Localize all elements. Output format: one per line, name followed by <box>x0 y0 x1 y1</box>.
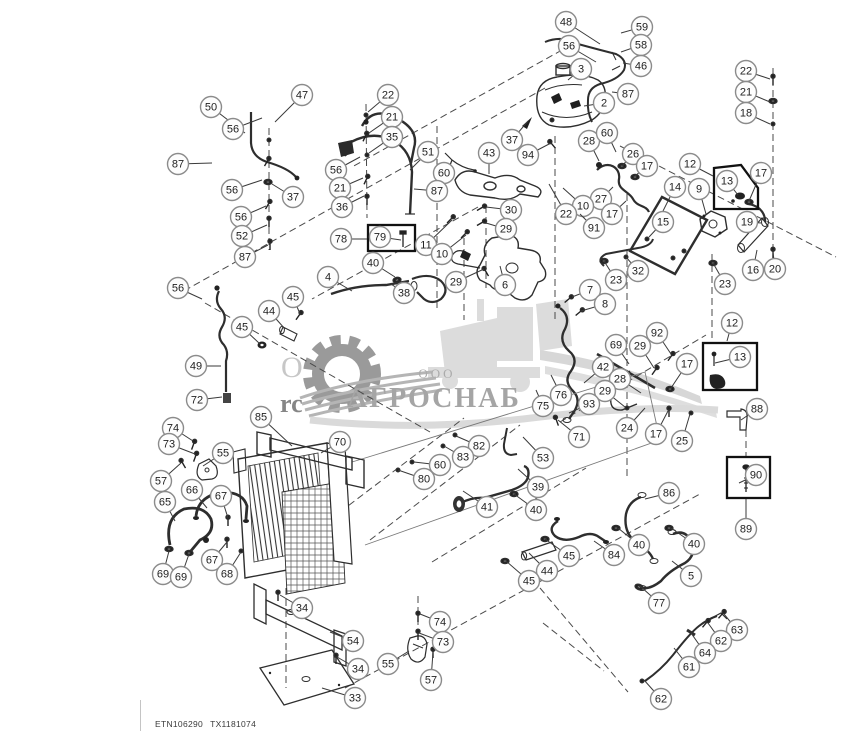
svg-text:73: 73 <box>163 439 175 451</box>
parts-diagram-page: ООО АГРОСНАБ О rc <box>0 0 841 731</box>
svg-text:74: 74 <box>434 617 446 629</box>
svg-text:56: 56 <box>226 185 238 197</box>
svg-text:69: 69 <box>175 572 187 584</box>
watermark-fragment-letter: О <box>281 351 303 384</box>
svg-text:69: 69 <box>610 340 622 352</box>
svg-text:7: 7 <box>587 285 593 297</box>
svg-text:14: 14 <box>669 182 681 194</box>
svg-text:34: 34 <box>296 603 308 615</box>
svg-text:21: 21 <box>334 183 346 195</box>
svg-text:29: 29 <box>634 341 646 353</box>
svg-text:48: 48 <box>560 17 572 29</box>
svg-text:43: 43 <box>483 148 495 160</box>
doc-code: ETN106290 <box>155 719 203 729</box>
svg-text:73: 73 <box>437 637 449 649</box>
svg-text:17: 17 <box>641 161 653 173</box>
svg-text:90: 90 <box>750 470 762 482</box>
svg-text:29: 29 <box>500 224 512 236</box>
svg-text:22: 22 <box>560 209 572 221</box>
svg-text:13: 13 <box>734 352 746 364</box>
svg-text:56: 56 <box>235 212 247 224</box>
svg-text:28: 28 <box>583 136 595 148</box>
svg-text:27: 27 <box>595 194 607 206</box>
svg-text:55: 55 <box>217 448 229 460</box>
svg-text:51: 51 <box>422 147 434 159</box>
svg-text:34: 34 <box>352 664 364 676</box>
svg-text:33: 33 <box>349 693 361 705</box>
svg-text:26: 26 <box>627 149 639 161</box>
svg-text:87: 87 <box>239 252 251 264</box>
svg-text:40: 40 <box>530 505 542 517</box>
svg-text:29: 29 <box>450 277 462 289</box>
svg-text:36: 36 <box>336 202 348 214</box>
svg-text:87: 87 <box>622 89 634 101</box>
svg-text:19: 19 <box>741 217 753 229</box>
svg-text:38: 38 <box>398 288 410 300</box>
svg-text:55: 55 <box>382 659 394 671</box>
svg-text:24: 24 <box>621 423 633 435</box>
svg-text:80: 80 <box>418 474 430 486</box>
svg-text:56: 56 <box>563 41 575 53</box>
svg-text:23: 23 <box>719 279 731 291</box>
svg-text:83: 83 <box>457 452 469 464</box>
svg-text:76: 76 <box>555 390 567 402</box>
svg-text:69: 69 <box>157 569 169 581</box>
svg-text:72: 72 <box>191 395 203 407</box>
svg-text:74: 74 <box>167 423 179 435</box>
svg-text:22: 22 <box>740 66 752 78</box>
svg-text:71: 71 <box>573 432 585 444</box>
svg-text:58: 58 <box>635 40 647 52</box>
svg-text:53: 53 <box>537 453 549 465</box>
svg-text:50: 50 <box>205 102 217 114</box>
watermark-fragment-text: rc <box>280 389 303 418</box>
svg-text:37: 37 <box>506 135 518 147</box>
svg-text:12: 12 <box>726 318 738 330</box>
svg-text:66: 66 <box>186 485 198 497</box>
svg-text:92: 92 <box>651 328 663 340</box>
svg-text:78: 78 <box>335 234 347 246</box>
svg-text:3: 3 <box>578 64 584 76</box>
svg-text:28: 28 <box>614 374 626 386</box>
svg-text:70: 70 <box>334 437 346 449</box>
svg-text:13: 13 <box>721 176 733 188</box>
svg-text:8: 8 <box>602 299 608 311</box>
watermark-company-name: АГРОСНАБ <box>347 383 521 414</box>
svg-text:11: 11 <box>420 240 431 252</box>
svg-text:5: 5 <box>688 571 694 583</box>
svg-text:88: 88 <box>751 404 763 416</box>
svg-text:91: 91 <box>588 223 600 235</box>
svg-text:17: 17 <box>755 168 767 180</box>
svg-text:56: 56 <box>172 283 184 295</box>
svg-text:12: 12 <box>684 159 696 171</box>
svg-text:29: 29 <box>599 386 611 398</box>
svg-text:56: 56 <box>227 124 239 136</box>
svg-text:17: 17 <box>650 429 662 441</box>
svg-text:93: 93 <box>583 399 595 411</box>
svg-text:62: 62 <box>655 694 667 706</box>
svg-text:2: 2 <box>601 98 607 110</box>
svg-text:75: 75 <box>537 401 549 413</box>
svg-text:44: 44 <box>541 566 553 578</box>
svg-text:40: 40 <box>688 539 700 551</box>
svg-text:22: 22 <box>382 90 394 102</box>
svg-text:16: 16 <box>747 265 759 277</box>
sheet-code: TX1181074 <box>210 719 256 729</box>
svg-text:84: 84 <box>608 550 620 562</box>
svg-text:54: 54 <box>347 636 359 648</box>
svg-text:77: 77 <box>653 598 665 610</box>
svg-text:23: 23 <box>610 275 622 287</box>
svg-text:18: 18 <box>740 108 752 120</box>
svg-text:87: 87 <box>172 159 184 171</box>
svg-text:45: 45 <box>236 322 248 334</box>
svg-text:37: 37 <box>287 192 299 204</box>
watermark-company-prefix: ООО <box>418 366 455 381</box>
svg-text:21: 21 <box>386 112 398 124</box>
svg-text:45: 45 <box>287 292 299 304</box>
svg-text:32: 32 <box>632 266 644 278</box>
svg-text:60: 60 <box>438 168 450 180</box>
svg-text:44: 44 <box>263 306 275 318</box>
svg-text:17: 17 <box>606 209 618 221</box>
svg-text:68: 68 <box>221 569 233 581</box>
svg-text:40: 40 <box>367 258 379 270</box>
svg-text:30: 30 <box>505 205 517 217</box>
exploded-parts-diagram: ООО АГРОСНАБ О rc <box>0 0 841 731</box>
svg-text:56: 56 <box>330 165 342 177</box>
svg-text:4: 4 <box>325 272 331 284</box>
svg-text:6: 6 <box>502 280 508 292</box>
svg-text:87: 87 <box>431 186 443 198</box>
svg-text:62: 62 <box>715 636 727 648</box>
svg-text:79: 79 <box>374 232 386 244</box>
svg-text:64: 64 <box>699 648 711 660</box>
svg-text:20: 20 <box>769 264 781 276</box>
svg-text:39: 39 <box>532 482 544 494</box>
svg-text:63: 63 <box>731 625 743 637</box>
svg-text:40: 40 <box>633 540 645 552</box>
svg-text:45: 45 <box>523 576 535 588</box>
svg-text:61: 61 <box>683 662 695 674</box>
svg-text:47: 47 <box>296 90 308 102</box>
svg-text:67: 67 <box>215 491 227 503</box>
svg-text:25: 25 <box>676 436 688 448</box>
svg-text:94: 94 <box>522 150 534 162</box>
svg-text:57: 57 <box>425 675 437 687</box>
svg-text:46: 46 <box>635 61 647 73</box>
svg-text:59: 59 <box>636 22 648 34</box>
svg-text:82: 82 <box>473 441 485 453</box>
svg-text:10: 10 <box>436 249 448 261</box>
svg-text:21: 21 <box>740 87 752 99</box>
svg-text:67: 67 <box>206 555 218 567</box>
svg-text:41: 41 <box>481 502 493 514</box>
svg-text:85: 85 <box>255 412 267 424</box>
svg-text:9: 9 <box>696 184 702 196</box>
svg-text:15: 15 <box>657 217 669 229</box>
svg-text:65: 65 <box>159 497 171 509</box>
svg-text:52: 52 <box>236 231 248 243</box>
svg-text:86: 86 <box>663 488 675 500</box>
svg-text:60: 60 <box>601 128 613 140</box>
svg-text:89: 89 <box>740 524 752 536</box>
svg-text:60: 60 <box>434 460 446 472</box>
svg-text:17: 17 <box>681 359 693 371</box>
svg-text:57: 57 <box>155 476 167 488</box>
svg-text:35: 35 <box>386 132 398 144</box>
svg-text:49: 49 <box>190 361 202 373</box>
svg-text:42: 42 <box>597 362 609 374</box>
svg-text:10: 10 <box>577 201 589 213</box>
svg-text:45: 45 <box>563 551 575 563</box>
